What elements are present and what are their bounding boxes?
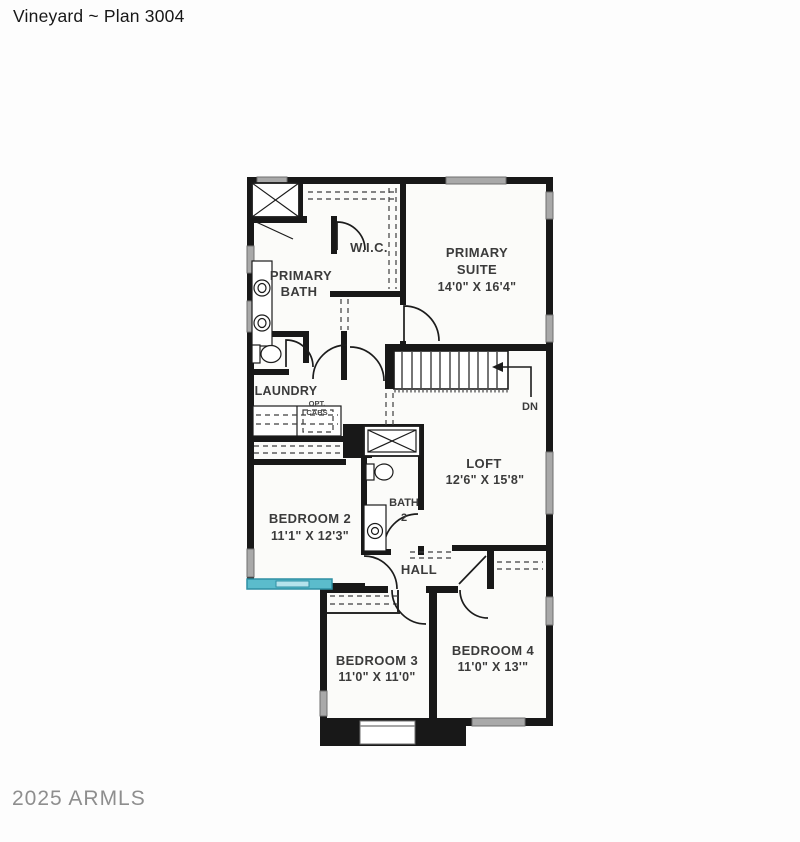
bedroom2-dimensions: 11'1" X 12'3" <box>271 529 349 543</box>
bedroom2-label: BEDROOM 2 <box>269 511 351 526</box>
bathtub-icon <box>364 426 420 456</box>
loft-dimensions: 12'6" X 15'8" <box>446 473 525 487</box>
accent-window <box>276 581 309 587</box>
wic-label: W.I.C. <box>350 240 388 255</box>
bath2-label: BATH <box>389 497 419 509</box>
stairs-dn-label: DN <box>522 401 538 413</box>
primary-bath-label: PRIMARY <box>270 268 332 283</box>
bedroom3-dimensions: 11'0" X 11'0" <box>338 670 415 684</box>
opt-cabs-label: OPT. <box>309 399 326 408</box>
window <box>472 718 525 726</box>
laundry-label: LAUNDRY <box>255 384 318 398</box>
hall-label: HALL <box>401 562 437 577</box>
toilet-icon <box>366 464 393 480</box>
armls-watermark: 2025 ARMLS <box>12 787 146 811</box>
window <box>320 691 327 716</box>
shower-icon <box>252 183 299 217</box>
toilet-icon <box>252 345 281 363</box>
window <box>546 597 553 625</box>
primary-suite-label: SUITE <box>457 262 497 277</box>
bedroom4-dimensions: 11'0" X 13'" <box>458 660 529 674</box>
floor-plan: W.I.C. PRIMARY BATH PRIMARY SUITE 14'0" … <box>0 0 800 842</box>
window <box>360 721 415 744</box>
window <box>446 177 506 184</box>
window <box>546 192 553 219</box>
window <box>247 549 254 577</box>
washer-dryer-icon <box>253 406 341 436</box>
primary-bath-label: BATH <box>281 284 318 299</box>
bath2-label: 2 <box>401 512 407 524</box>
primary-suite-dimensions: 14'0" X 16'4" <box>438 280 517 294</box>
primary-suite-label: PRIMARY <box>446 245 508 260</box>
window <box>546 315 553 342</box>
bedroom4-label: BEDROOM 4 <box>452 643 535 658</box>
vanity-icon <box>364 505 386 551</box>
bedroom3-label: BEDROOM 3 <box>336 653 418 668</box>
loft-label: LOFT <box>466 456 502 471</box>
opt-cabs-label: CABS <box>306 408 327 417</box>
window <box>546 452 553 514</box>
